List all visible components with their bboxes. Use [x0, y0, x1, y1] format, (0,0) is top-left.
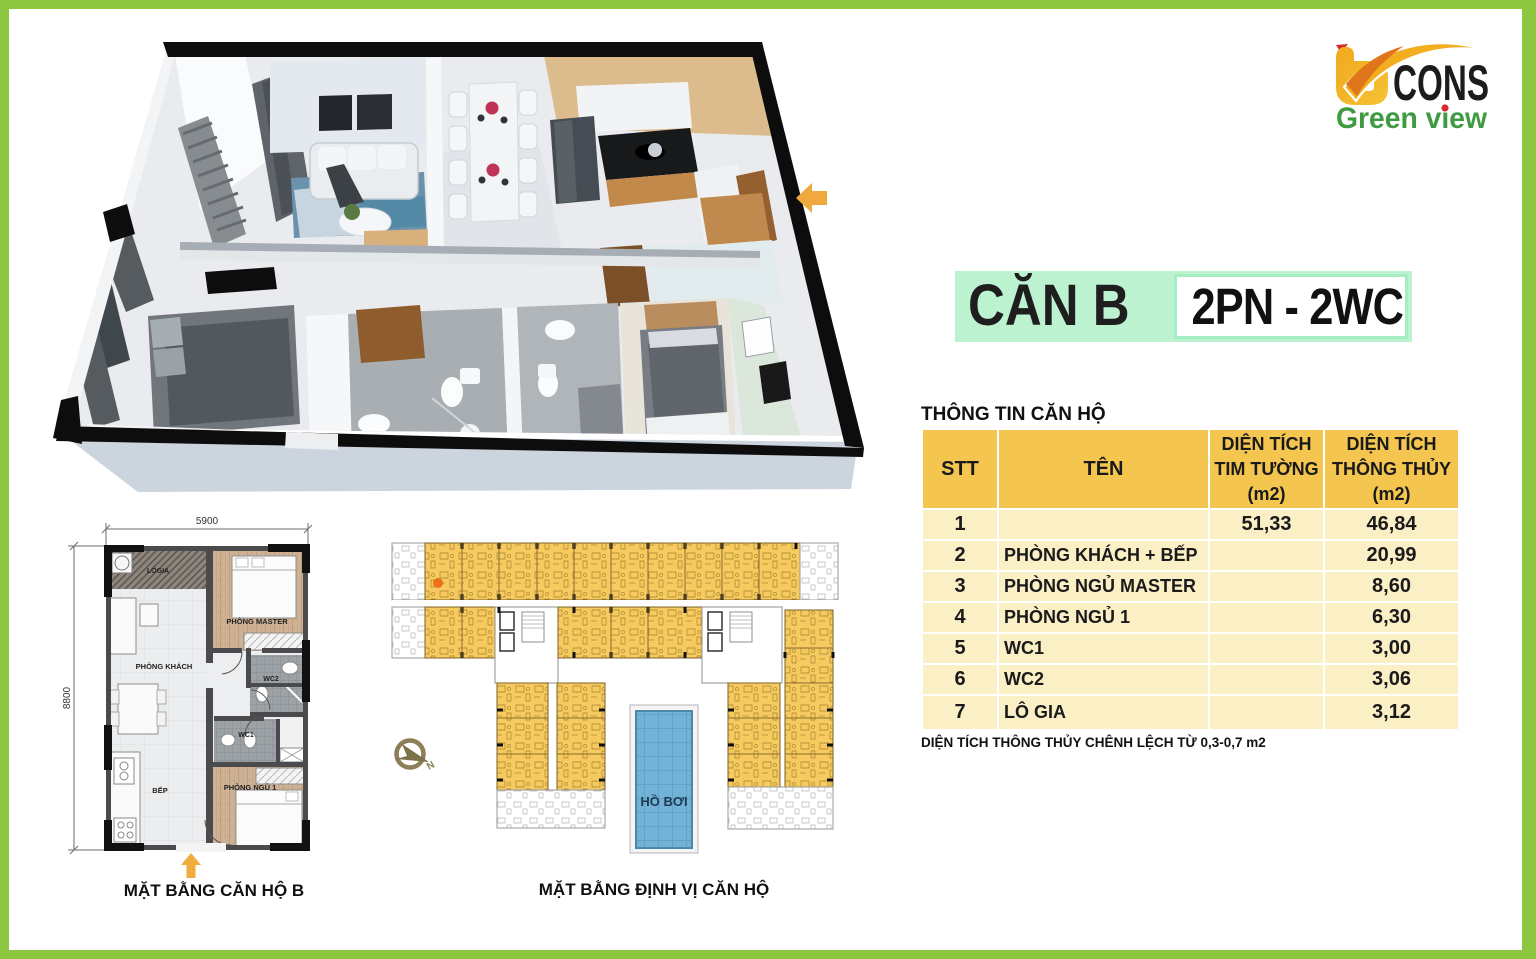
svg-text:8800: 8800 [62, 686, 73, 709]
svg-text:WC1: WC1 [238, 732, 254, 739]
svg-text:N: N [425, 759, 437, 772]
svg-text:PHÒNG MASTER: PHÒNG MASTER [226, 617, 288, 626]
svg-text:5900: 5900 [196, 516, 219, 527]
svg-text:HỒ BƠI: HỒ BƠI [640, 794, 687, 809]
svg-text:LÔGIA: LÔGIA [147, 566, 169, 575]
svg-text:WC2: WC2 [263, 676, 279, 683]
svg-text:PHÒNG KHÁCH: PHÒNG KHÁCH [136, 662, 193, 671]
svg-text:BẾP: BẾP [152, 785, 167, 795]
svg-text:PHÒNG NGỦ 1: PHÒNG NGỦ 1 [224, 783, 277, 792]
